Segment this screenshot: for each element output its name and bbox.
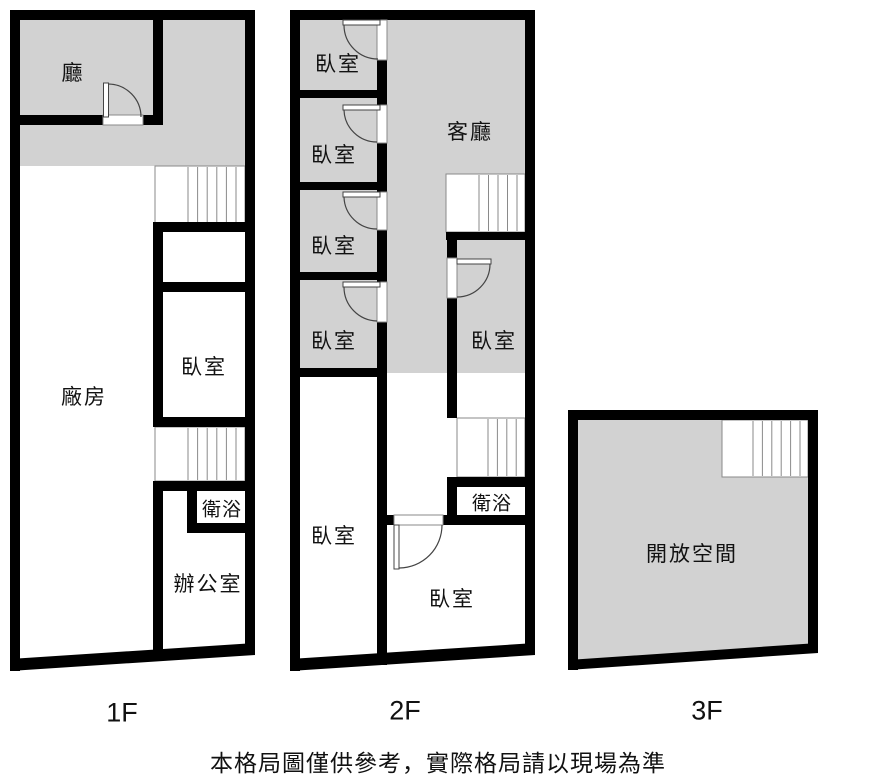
room-label-2f-bedroom-1: 臥室 (315, 48, 361, 78)
room-label-3f-open-space: 開放空間 (646, 538, 738, 568)
disclaimer-text: 本格局圖僅供參考，實際格局請以現場為準 (210, 744, 666, 778)
room-label-2f-bedroom-5: 臥室 (471, 325, 517, 355)
stairs-1f-lower (155, 427, 245, 481)
floor-plan-canvas: 廳 廠房 臥室 衛浴 辦公室 臥室 臥室 臥室 客廳 臥室 臥室 衛浴 臥室 臥… (0, 0, 889, 783)
stairs-3f (722, 420, 808, 477)
room-label-1f-bathroom: 衛浴 (202, 495, 242, 522)
room-label-2f-bedroom-6: 臥室 (311, 520, 357, 550)
room-label-2f-living-room: 客廳 (447, 116, 493, 146)
room-label-2f-bedroom-3: 臥室 (311, 230, 357, 260)
floor-label-1f: 1F (106, 698, 138, 729)
floor-plan-drawing (0, 0, 889, 783)
room-label-1f-office: 辦公室 (174, 568, 243, 598)
room-label-2f-bedroom-4: 臥室 (311, 325, 357, 355)
door-2f-bedroom-7 (394, 515, 443, 569)
stairs-1f-upper (155, 166, 245, 227)
gray-areas-1f (20, 20, 245, 166)
room-label-2f-bedroom-2: 臥室 (311, 139, 357, 169)
room-label-2f-bedroom-7: 臥室 (429, 583, 475, 613)
room-label-2f-bathroom: 衛浴 (472, 489, 512, 516)
stairs-2f-upper (446, 174, 525, 232)
floor-label-2f: 2F (389, 696, 421, 727)
room-label-1f-hall: 廳 (62, 57, 85, 87)
stairs-2f-lower (457, 418, 525, 477)
room-label-1f-bedroom: 臥室 (181, 351, 227, 381)
floor-label-3f: 3F (691, 696, 723, 727)
room-label-1f-factory: 廠房 (61, 381, 107, 411)
